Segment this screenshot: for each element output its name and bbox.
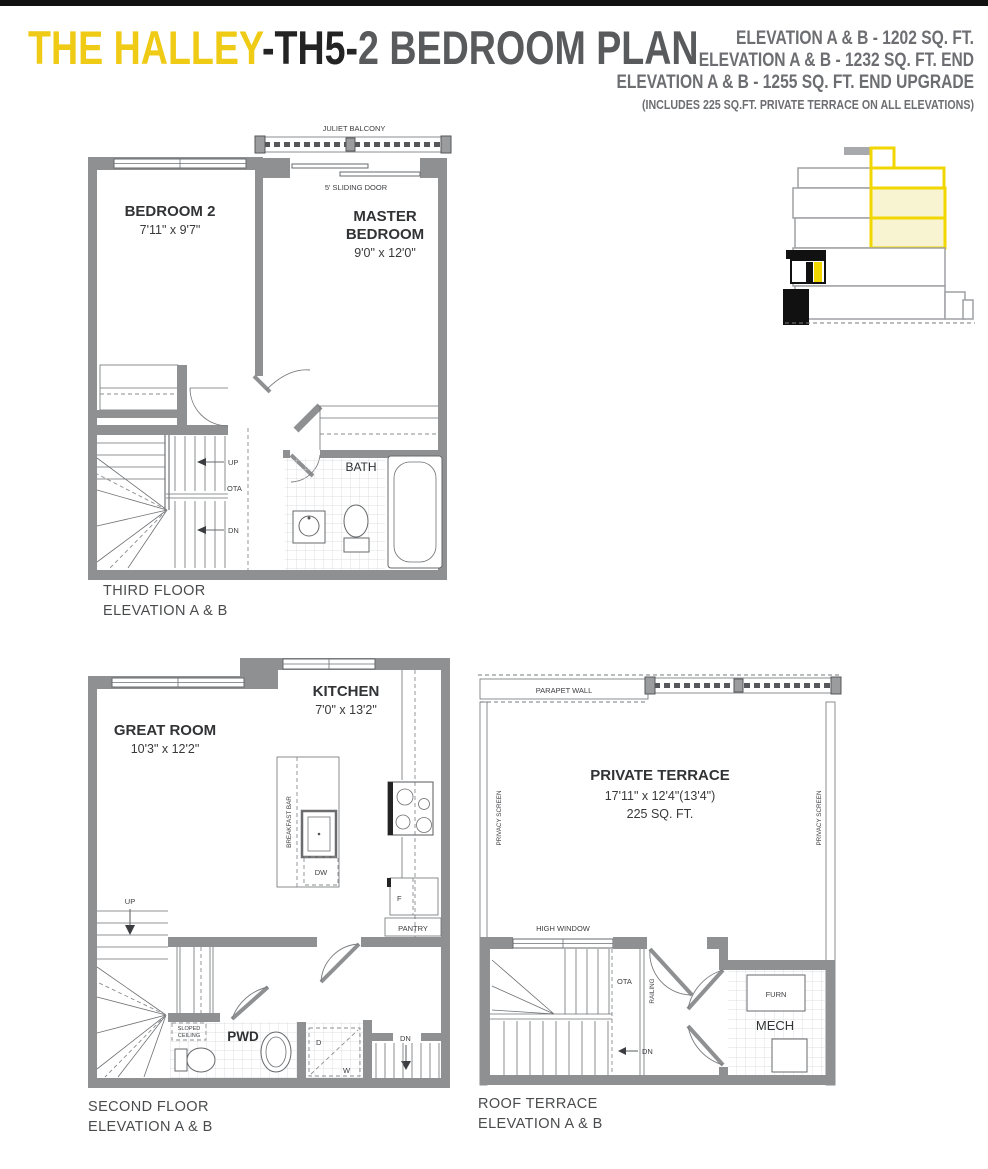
page-title: THE HALLEY-TH5-2 BEDROOM PLAN <box>28 20 699 75</box>
furn-label: FURN <box>766 990 787 999</box>
key-base-block <box>783 289 809 325</box>
rear-hall <box>218 937 450 982</box>
sloped-ceiling-1: SLOPED <box>178 1026 201 1032</box>
terrace-name: PRIVATE TERRACE <box>590 767 729 784</box>
roof-stairs: OTA RAILING DN <box>490 949 656 1075</box>
kitchen-dims: 7'0" x 13'2" <box>315 703 377 717</box>
terrace-dims: 17'11" x 12'4"(13'4") <box>605 789 716 803</box>
dn-arrow <box>197 526 206 534</box>
stove <box>388 782 433 835</box>
mech-equipment <box>772 1039 807 1072</box>
bedroom2-dims: 7'11" x 9'7" <box>140 223 201 237</box>
breakfast-bar-island: BREAKFAST BAR DW <box>277 757 339 887</box>
duct-shaft <box>168 937 220 1022</box>
bedroom2-door-arc <box>190 388 228 426</box>
juliet-balcony-label: JULIET BALCONY <box>323 124 386 133</box>
kitchen-counter <box>388 670 433 937</box>
down-stairs: DN <box>372 1033 450 1078</box>
dn-label: DN <box>400 1034 411 1043</box>
elevation-line-2: ELEVATION A & B - 1232 SQ. FT. END <box>616 50 974 72</box>
stair-hall-door <box>650 949 692 995</box>
bedroom2-window <box>114 159 246 168</box>
second-floor-stairs: UP <box>97 897 168 1077</box>
dn-label: DN <box>228 526 239 535</box>
privacy-screen-right: PRIVACY SCREEN <box>816 790 823 846</box>
dn-label: DN <box>642 1047 653 1056</box>
key-entry-highlight <box>814 262 822 282</box>
key-unit-level2 <box>871 188 945 218</box>
kitchen-window <box>283 659 375 669</box>
high-window-label: HIGH WINDOW <box>536 924 591 933</box>
roof-caption-2: ELEVATION A & B <box>478 1116 603 1132</box>
pantry: F PANTRY <box>385 878 441 936</box>
second-floor-caption-1: SECOND FLOOR <box>88 1099 209 1115</box>
bedroom2-closet <box>88 365 187 425</box>
up-label: UP <box>125 897 135 906</box>
master-closet <box>318 406 438 450</box>
toilet <box>344 505 368 537</box>
parapet: PARAPET WALL <box>478 675 841 702</box>
dn-arrow <box>618 1047 626 1055</box>
top-border-bar <box>0 0 988 6</box>
third-floor-stairs: UP OTA DN <box>88 425 248 570</box>
mech-label: MECH <box>756 1018 794 1033</box>
pantry-label: PANTRY <box>398 924 428 933</box>
sliding-door-label: 5' SLIDING DOOR <box>325 183 388 192</box>
roof-terrace-plan: PARAPET WALL PRIVACY SCREEN PRIVACY SCRE… <box>470 658 850 1143</box>
dryer-label: D <box>316 1038 322 1047</box>
master-name-line2: BEDROOM <box>346 226 424 243</box>
elevation-line-3: ELEVATION A & B - 1255 SQ. FT. END UPGRA… <box>616 72 974 94</box>
key-unit-level3 <box>871 168 944 188</box>
pwd-toilet <box>187 1048 215 1072</box>
great-room-window <box>112 678 244 687</box>
mech-room: FURN MECH <box>688 970 826 1075</box>
sloped-ceiling-2: CEILING <box>178 1033 200 1039</box>
third-floor-doors <box>190 370 320 430</box>
ota-label: OTA <box>617 977 632 986</box>
bath: BATH <box>283 450 447 570</box>
breakfast-bar-label: BREAKFAST BAR <box>286 796 293 848</box>
elevation-summary: ELEVATION A & B - 1202 SQ. FT. ELEVATION… <box>616 28 974 114</box>
railing-label: RAILING <box>649 978 656 1003</box>
elevation-line-1: ELEVATION A & B - 1202 SQ. FT. <box>616 28 974 50</box>
pwd-door <box>232 987 268 1019</box>
title-brand: THE HALLEY <box>28 21 262 74</box>
key-roof-block <box>844 147 871 155</box>
building-key-plan <box>783 142 983 332</box>
sliding-door: 5' SLIDING DOOR <box>292 164 420 192</box>
pwd-sink <box>261 1032 291 1072</box>
second-floor-plan: GREAT ROOM 10'3" x 12'2" KITCHEN 7'0" x … <box>80 645 465 1145</box>
parapet-label: PARAPET WALL <box>536 686 593 695</box>
ota-label: OTA <box>227 484 242 493</box>
bedroom2-name: BEDROOM 2 <box>125 203 216 220</box>
washer-label: W <box>343 1066 351 1075</box>
third-floor-caption-1: THIRD FLOOR <box>103 583 206 599</box>
floorplan-sheet: THE HALLEY-TH5-2 BEDROOM PLAN ELEVATION … <box>0 0 988 1169</box>
great-room-name: GREAT ROOM <box>114 722 216 739</box>
privacy-screen-left: PRIVACY SCREEN <box>496 790 503 846</box>
title-model: -TH5- <box>262 21 358 74</box>
great-room-dims: 10'3" x 12'2" <box>131 742 200 756</box>
bath-label: BATH <box>345 460 376 474</box>
third-floor-caption-2: ELEVATION A & B <box>103 603 228 619</box>
up-label: UP <box>228 458 238 467</box>
chamfer-wall <box>296 406 320 430</box>
key-unit-level1 <box>871 218 945 248</box>
mech-door-lower <box>688 1026 723 1065</box>
bathtub <box>388 456 442 568</box>
juliet-balcony: JULIET BALCONY <box>255 124 451 153</box>
up-arrow <box>125 925 135 935</box>
master-door-arc <box>266 370 310 390</box>
kitchen-name: KITCHEN <box>313 683 380 700</box>
fridge-label: F <box>397 894 402 903</box>
key-unit-top <box>871 148 894 168</box>
master-dims: 9'0" x 12'0" <box>354 246 416 260</box>
terrace-area: 225 SQ. FT. <box>627 807 694 821</box>
key-canopy <box>786 250 826 259</box>
master-name-line1: MASTER <box>353 208 417 225</box>
pwd-label: PWD <box>227 1029 259 1044</box>
laundry-closet: D W <box>297 1020 372 1078</box>
up-arrow <box>197 458 206 466</box>
mech-door-upper <box>688 970 723 1009</box>
powder-room: SLOPED CEILING PWD <box>170 987 297 1078</box>
dn-arrow <box>401 1061 411 1070</box>
dishwasher-label: DW <box>315 868 328 877</box>
second-floor-caption-2: ELEVATION A & B <box>88 1119 213 1135</box>
third-floor-plan: JULIET BALCONY 5' SLIDING DOOR <box>80 118 465 623</box>
roof-caption-1: ROOF TERRACE <box>478 1096 598 1112</box>
terrace-note: (INCLUDES 225 SQ.FT. PRIVATE TERRACE ON … <box>616 96 974 114</box>
